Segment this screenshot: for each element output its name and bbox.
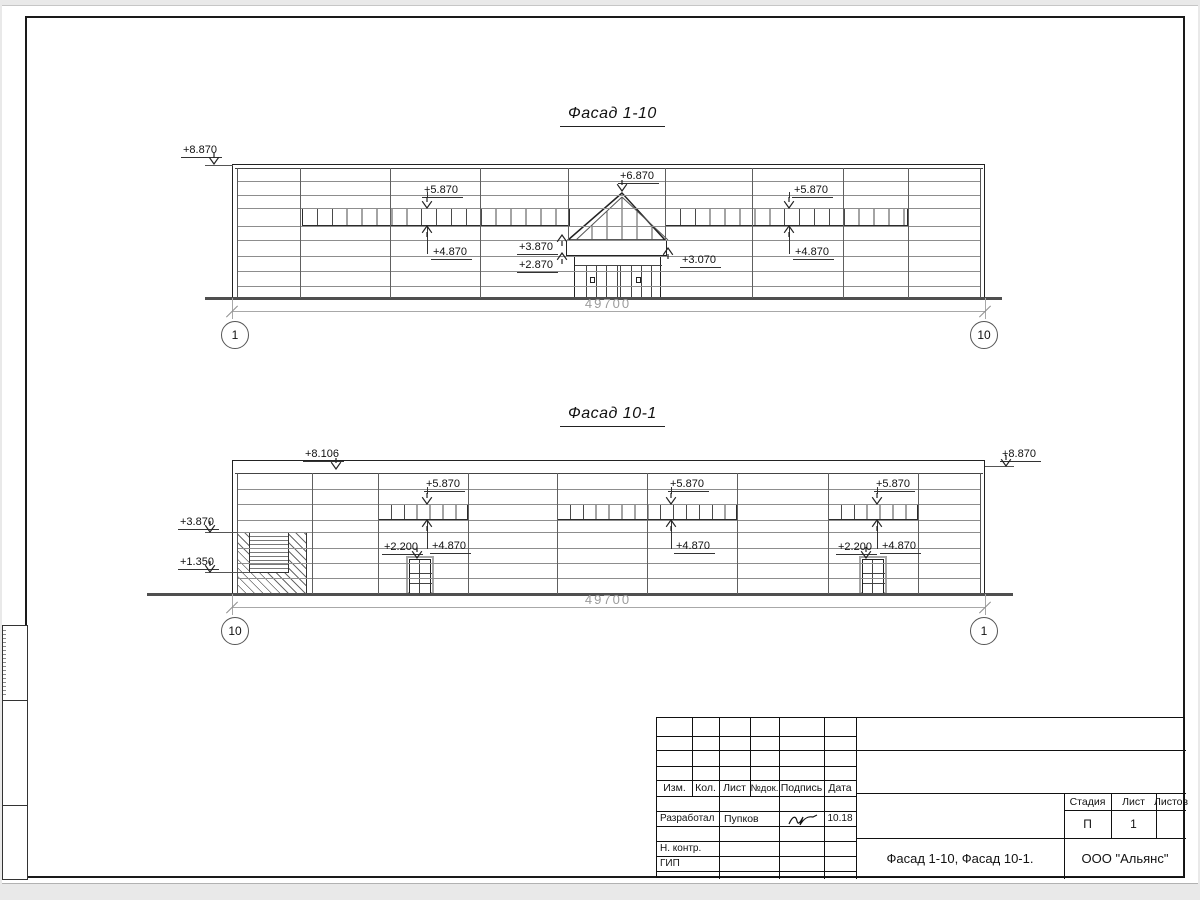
elevation-value: +3.070 xyxy=(680,254,721,268)
dimension-value: 49700 xyxy=(568,592,648,607)
elevation-value: +4.870 xyxy=(793,246,834,260)
elevation-value: +4.870 xyxy=(880,540,921,554)
elevation-arrow-down-icon xyxy=(860,547,872,559)
elevation-arrow-down-icon xyxy=(411,547,423,559)
tb-sheets-value xyxy=(1156,810,1186,838)
pilaster-line xyxy=(665,168,666,240)
tb-company: ООО "Альянс" xyxy=(1064,838,1186,879)
elevation-mark: +4.870 xyxy=(880,536,921,554)
axis-bubble: 1 xyxy=(970,617,998,645)
pilaster-line xyxy=(557,473,558,594)
pilaster-line xyxy=(828,473,829,594)
pilaster-line xyxy=(378,473,379,594)
axis-number: 10 xyxy=(228,624,241,638)
panel-joint-line xyxy=(237,181,980,182)
tb-sheet-value: 1 xyxy=(1111,810,1156,838)
elevation-arrow-up-icon xyxy=(871,519,883,531)
panel-joint-line xyxy=(237,286,980,287)
panel-joint-line xyxy=(237,504,980,505)
panel-joint-line xyxy=(237,532,980,533)
elevation-arrow-down-icon xyxy=(871,493,883,505)
margin-stamp-box-2 xyxy=(2,700,28,808)
panel-joint-line xyxy=(237,195,980,196)
pilaster-line xyxy=(752,168,753,298)
elevation-arrow-down-icon xyxy=(616,180,628,192)
axis-number: 10 xyxy=(977,328,990,342)
tb-row-developed: Разработал xyxy=(660,811,719,826)
margin-stamp-text xyxy=(3,630,6,695)
tb-stage-label: Стадия xyxy=(1064,793,1111,810)
pilaster-line xyxy=(980,473,981,594)
door-leaf xyxy=(862,559,884,594)
page-margin-bottom xyxy=(0,883,1200,900)
elevation-value: +5.870 xyxy=(792,184,833,198)
dimension-line xyxy=(232,311,985,312)
panel-joint-line xyxy=(237,240,980,241)
window-band xyxy=(665,208,908,226)
door-handle xyxy=(636,277,641,283)
tb-col-data: Дата xyxy=(824,780,856,796)
pilaster-line xyxy=(480,168,481,298)
elevation-arrow-down-icon xyxy=(204,561,216,573)
panel-joint-line xyxy=(235,473,983,474)
elevation-arrow-down-icon xyxy=(421,197,433,209)
elevation-arrow-down-icon xyxy=(204,521,216,533)
entrance-fascia xyxy=(566,240,667,256)
elevation-arrow-up-icon xyxy=(421,519,433,531)
pilaster-line xyxy=(568,168,569,240)
title-block: Изм. Кол. Лист №док. Подпись Дата Разраб… xyxy=(656,717,1185,878)
elevation-arrow-up-icon xyxy=(421,225,433,237)
panel-joint-line xyxy=(237,489,980,490)
tb-col-izm: Изм. xyxy=(657,780,692,796)
door-handle xyxy=(590,277,595,283)
pilaster-line xyxy=(980,168,981,298)
tb-doc-title: Фасад 1-10, Фасад 10-1. xyxy=(856,838,1064,879)
tb-developed-date: 10.18 xyxy=(824,811,856,826)
panel-joint-line xyxy=(237,578,980,579)
tb-stage-value: П xyxy=(1064,810,1111,838)
dimension-line xyxy=(232,607,985,608)
axis-number: 1 xyxy=(981,624,988,638)
door-leaf xyxy=(409,559,431,594)
pilaster-line xyxy=(300,168,301,298)
elevation-arrow-down-icon xyxy=(421,493,433,505)
elevation-arrow-down-icon xyxy=(208,153,220,165)
elevation-arrow-down-icon xyxy=(665,493,677,505)
axis-bubble: 10 xyxy=(970,321,998,349)
elevation-arrow-down-icon xyxy=(1000,455,1012,467)
pilaster-line xyxy=(237,473,238,594)
elevation-mark: +5.870 xyxy=(668,474,709,492)
elevation-arrow-up-icon xyxy=(662,247,674,259)
panel-joint-line xyxy=(237,563,980,564)
elevation-arrow-down-icon xyxy=(330,458,342,470)
elevation-arrow-up-icon xyxy=(665,519,677,531)
window-band xyxy=(378,504,468,520)
pilaster-line xyxy=(312,473,313,594)
axis-number: 1 xyxy=(232,328,239,342)
elevation-value: +4.870 xyxy=(431,246,472,260)
elevation-mark: +5.870 xyxy=(424,474,465,492)
tb-sheet-label: Лист xyxy=(1111,793,1156,810)
tb-col-podpis: Подпись xyxy=(779,780,824,796)
elevation-arrow-down-icon xyxy=(783,197,795,209)
drawing-sheet: Фасад 1-10 49700 1 10 Фасад 10-1 xyxy=(0,0,1200,900)
elevation-value: +3.870 xyxy=(517,241,558,255)
elevation-mark: +3.870 xyxy=(517,237,558,255)
pilaster-line xyxy=(908,168,909,298)
axis-bubble: 1 xyxy=(221,321,249,349)
entrance-doors xyxy=(574,256,661,298)
elevation-value: +5.870 xyxy=(424,478,465,492)
panel-joint-line xyxy=(237,520,980,521)
window-band xyxy=(302,208,570,226)
pilaster-line xyxy=(843,168,844,298)
tb-row-ncontr: Н. контр. xyxy=(660,841,719,856)
panel-joint-line xyxy=(237,256,980,257)
window-band xyxy=(828,504,918,520)
tb-col-ndok: №док. xyxy=(750,780,779,796)
elevation-mark: +5.870 xyxy=(874,474,915,492)
tb-col-kol: Кол. xyxy=(692,780,719,796)
elevation-mark: +4.870 xyxy=(793,242,834,260)
elevation-mark: +2.870 xyxy=(517,255,558,273)
elevation-value: +4.870 xyxy=(430,540,471,554)
elevation-mark: +5.870 xyxy=(792,180,833,198)
margin-stamp-box-3 xyxy=(2,805,28,880)
elevation-value: +5.870 xyxy=(422,184,463,198)
elevation-arrow-up-icon xyxy=(556,234,568,246)
tb-sheets-label: Листов xyxy=(1156,793,1186,810)
dimension-value: 49700 xyxy=(568,296,648,311)
elevation-mark: +4.870 xyxy=(430,536,471,554)
pilaster-line xyxy=(468,473,469,594)
tb-developed-name: Пупков xyxy=(724,811,779,826)
panel-joint-line xyxy=(237,208,980,209)
elevation-value: +5.870 xyxy=(668,478,709,492)
panel-joint-line xyxy=(237,271,980,272)
elevation-arrow-up-icon xyxy=(783,225,795,237)
ventilation-louver xyxy=(249,532,289,573)
signature-scribble xyxy=(787,813,819,827)
panel-joint-line xyxy=(235,168,983,169)
elevation-mark: +3.070 xyxy=(680,250,721,268)
elevation-mark: +4.870 xyxy=(674,536,715,554)
tb-col-list: Лист xyxy=(719,780,750,796)
pilaster-line xyxy=(737,473,738,594)
elevation-mark: +5.870 xyxy=(422,180,463,198)
elevation-value: +5.870 xyxy=(874,478,915,492)
pilaster-line xyxy=(237,168,238,298)
elevation-arrow-up-icon xyxy=(556,252,568,264)
elevation-mark: +4.870 xyxy=(431,242,472,260)
axis-bubble: 10 xyxy=(221,617,249,645)
pilaster-line xyxy=(390,168,391,298)
elevation-value: +2.870 xyxy=(517,259,558,273)
panel-joint-line xyxy=(237,226,980,227)
tb-row-gip: ГИП xyxy=(660,856,719,871)
pilaster-line xyxy=(918,473,919,594)
facade1-title: Фасад 1-10 xyxy=(560,105,665,127)
elevation-value: +4.870 xyxy=(674,540,715,554)
pilaster-line xyxy=(647,473,648,594)
page-margin-top xyxy=(0,0,1200,6)
facade2-title: Фасад 10-1 xyxy=(560,405,665,427)
